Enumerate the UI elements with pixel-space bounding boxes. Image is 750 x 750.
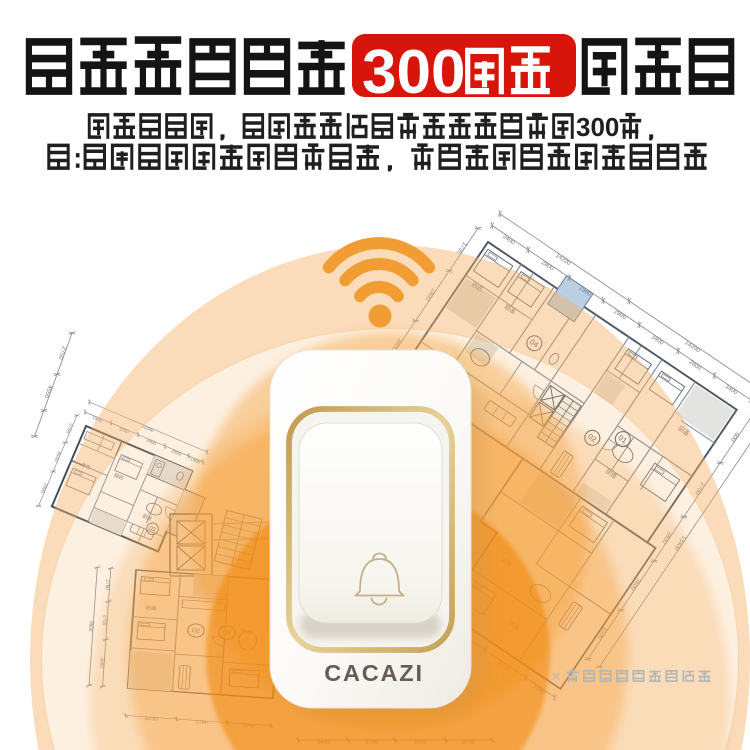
svg-text:300: 300 xyxy=(362,38,465,107)
svg-text:300: 300 xyxy=(576,112,619,142)
svg-text:CACAZI: CACAZI xyxy=(324,660,424,686)
